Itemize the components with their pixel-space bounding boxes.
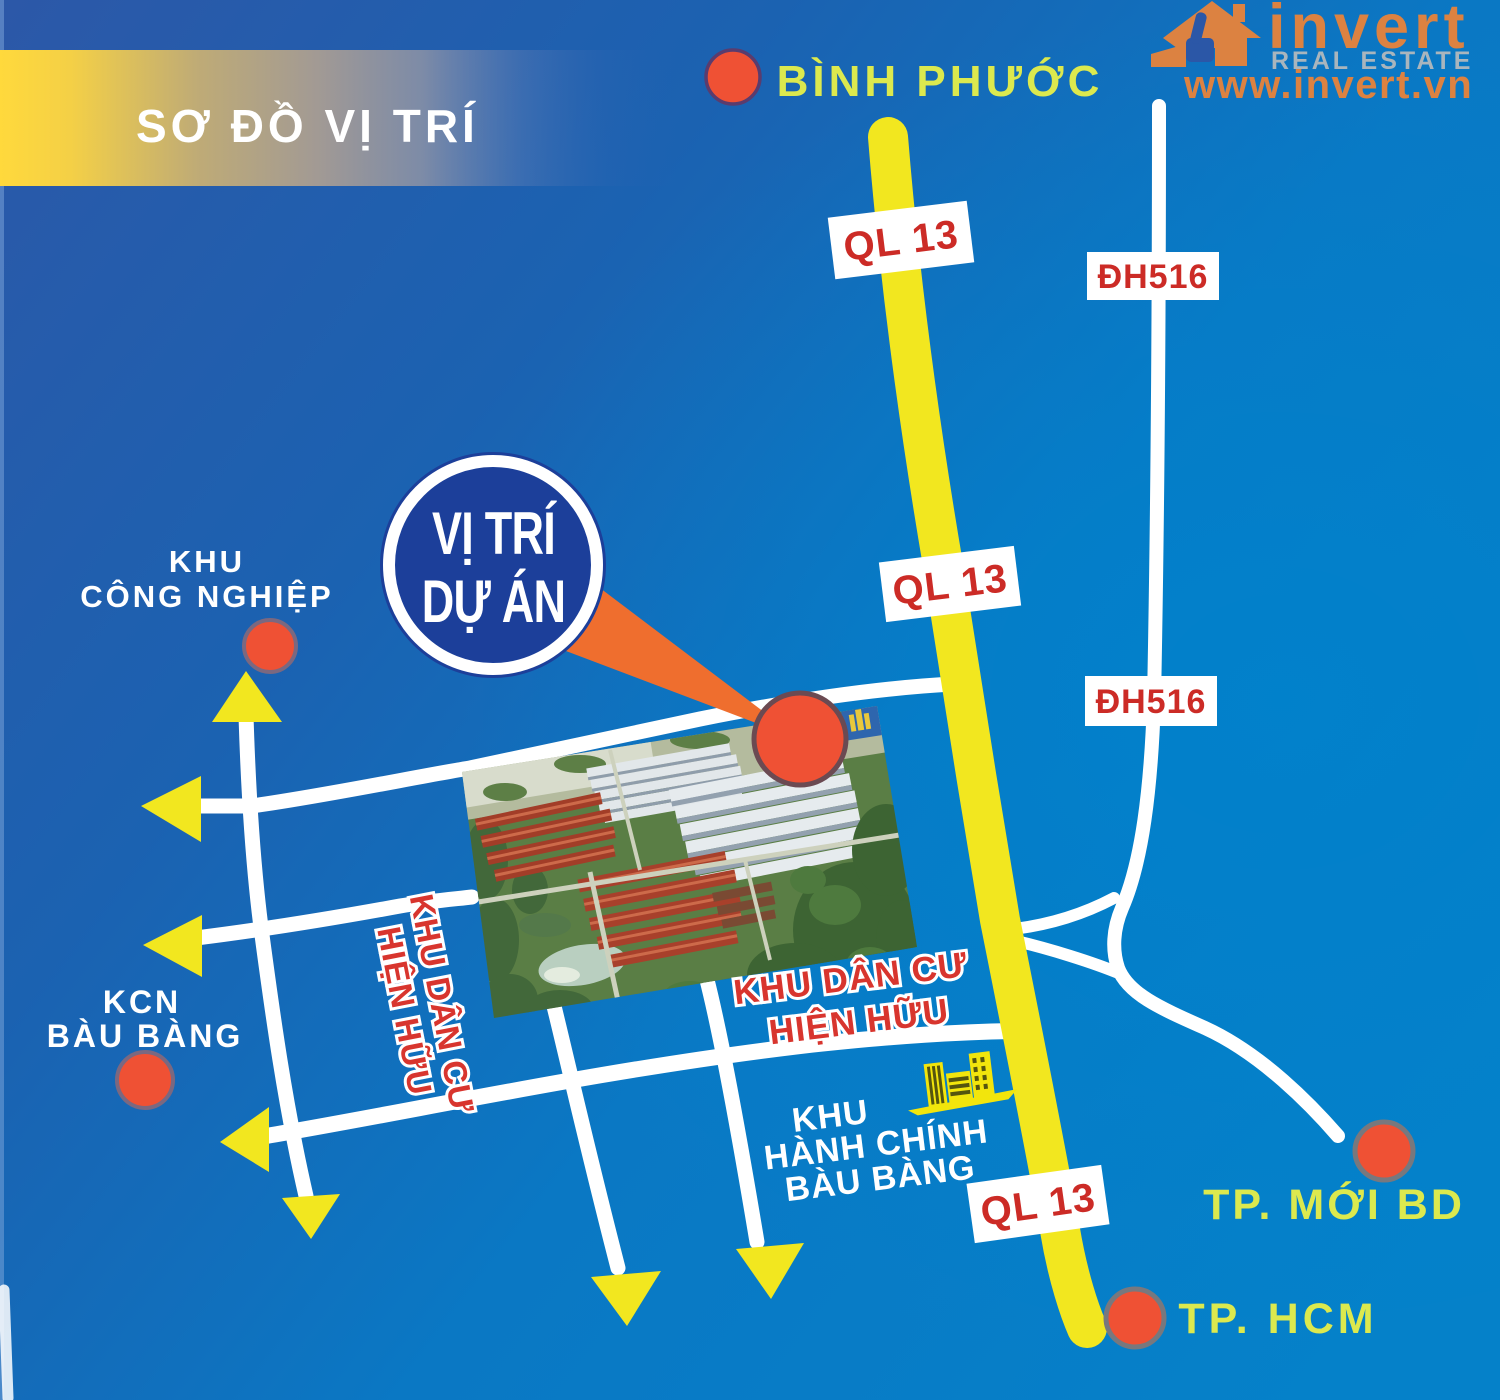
svg-text:KHU: KHU (169, 544, 245, 579)
svg-text:BÌNH PHƯỚC: BÌNH PHƯỚC (777, 56, 1104, 106)
svg-text:TP. MỚI BD: TP. MỚI BD (1203, 1180, 1465, 1229)
svg-text:VỊ TRÍ: VỊ TRÍ (432, 500, 557, 568)
svg-text:BÀU BÀNG: BÀU BÀNG (47, 1018, 243, 1054)
svg-text:ĐH516: ĐH516 (1098, 258, 1209, 296)
svg-text:TP. HCM: TP. HCM (1178, 1295, 1377, 1343)
svg-text:DỰ ÁN: DỰ ÁN (422, 568, 566, 636)
svg-text:SƠ ĐỒ VỊ TRÍ: SƠ ĐỒ VỊ TRÍ (136, 100, 479, 152)
svg-text:ĐH516: ĐH516 (1096, 683, 1207, 721)
svg-text:www.invert.vn: www.invert.vn (1183, 63, 1473, 107)
svg-text:CÔNG NGHIỆP: CÔNG NGHIỆP (80, 578, 333, 614)
svg-text:KCN: KCN (103, 984, 181, 1020)
